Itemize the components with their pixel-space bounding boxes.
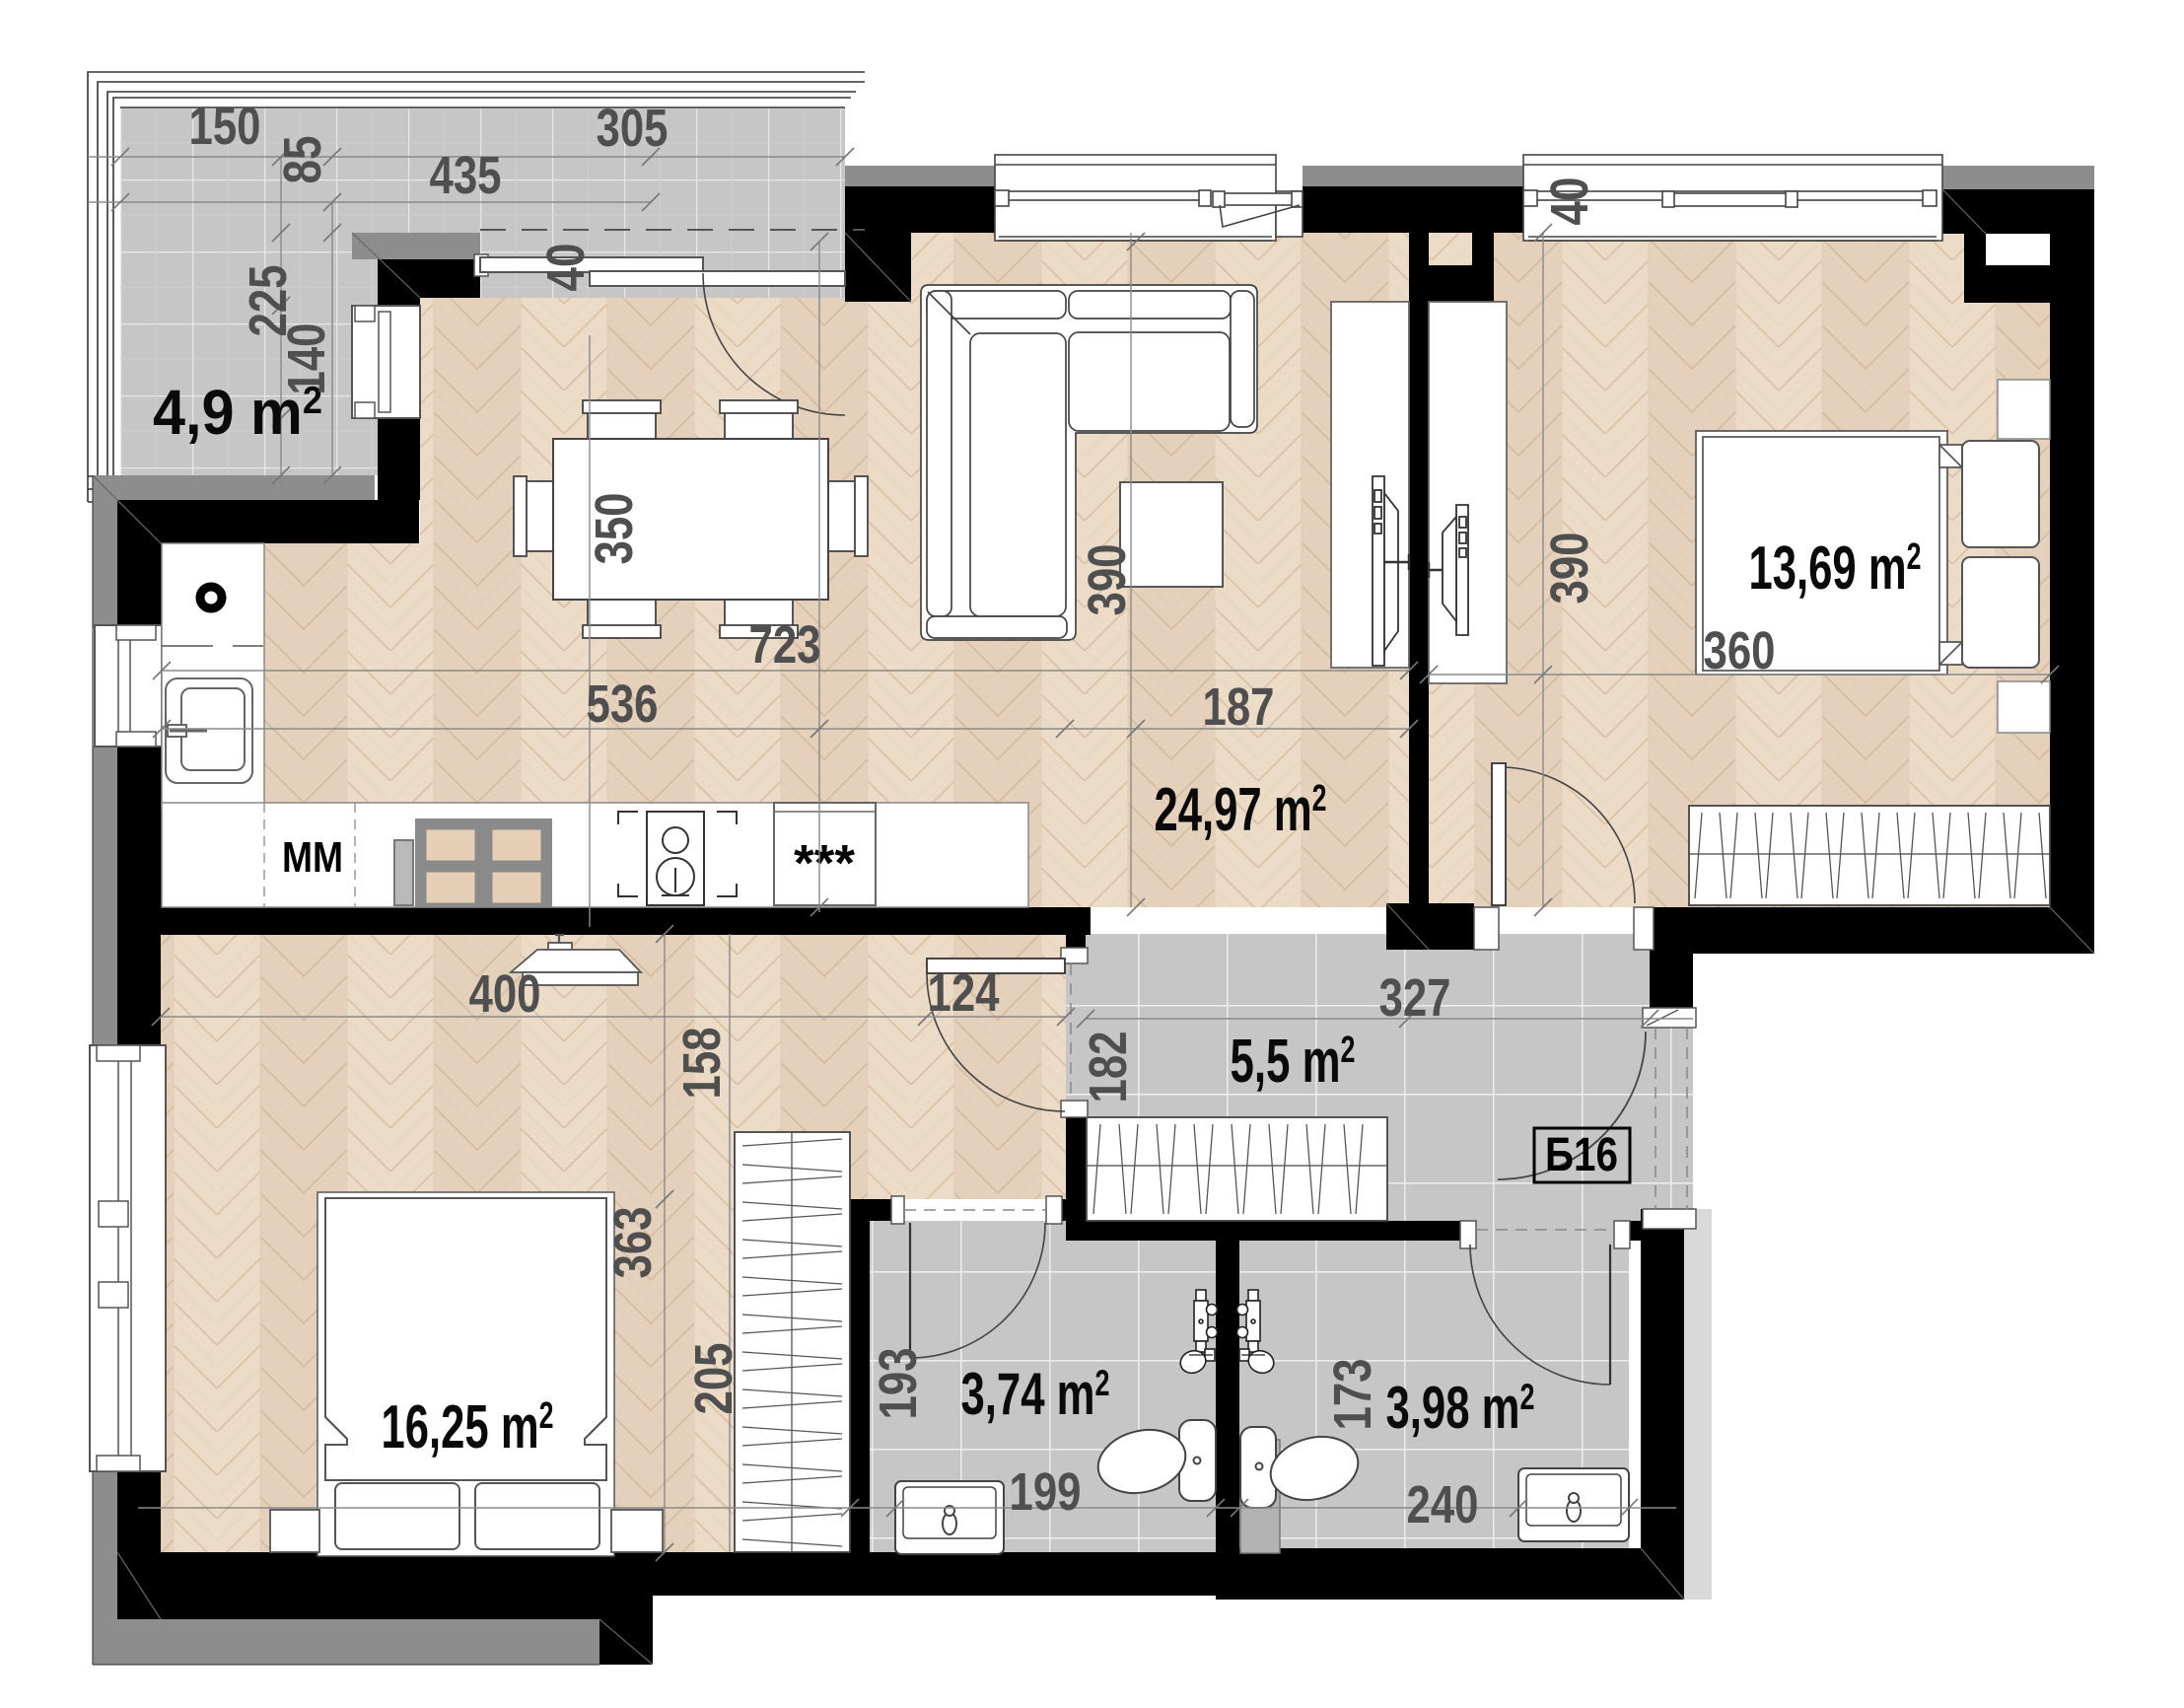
svg-text:187: 187 bbox=[1203, 677, 1275, 737]
svg-text:363: 363 bbox=[603, 1207, 663, 1279]
svg-text:40: 40 bbox=[536, 244, 596, 292]
svg-text:435: 435 bbox=[430, 146, 502, 205]
svg-text:360: 360 bbox=[1704, 621, 1776, 680]
svg-text:3,74 m2: 3,74 m2 bbox=[961, 1361, 1110, 1427]
svg-text:205: 205 bbox=[684, 1343, 743, 1415]
svg-text:5,5 m2: 5,5 m2 bbox=[1231, 1028, 1356, 1096]
svg-text:182: 182 bbox=[1079, 1032, 1138, 1103]
svg-text:158: 158 bbox=[672, 1028, 732, 1100]
svg-text:390: 390 bbox=[1078, 544, 1137, 616]
svg-text:140: 140 bbox=[277, 323, 336, 395]
svg-text:3,98 m2: 3,98 m2 bbox=[1386, 1375, 1535, 1441]
svg-text:240: 240 bbox=[1407, 1475, 1479, 1534]
svg-text:40: 40 bbox=[1540, 178, 1599, 226]
svg-text:327: 327 bbox=[1379, 968, 1451, 1028]
svg-text:16,25 m2: 16,25 m2 bbox=[382, 1393, 554, 1461]
svg-text:Б16: Б16 bbox=[1545, 1129, 1618, 1181]
svg-text:150: 150 bbox=[189, 97, 261, 156]
svg-text:173: 173 bbox=[1323, 1359, 1382, 1431]
svg-text:124: 124 bbox=[928, 963, 1000, 1023]
svg-text:390: 390 bbox=[1540, 533, 1599, 605]
svg-text:24,97 m2: 24,97 m2 bbox=[1155, 776, 1327, 844]
svg-text:85: 85 bbox=[273, 136, 332, 184]
svg-text:199: 199 bbox=[1010, 1462, 1082, 1522]
svg-text:13,69 m2: 13,69 m2 bbox=[1749, 534, 1922, 603]
svg-text:***: *** bbox=[794, 835, 856, 892]
svg-text:723: 723 bbox=[749, 615, 821, 675]
svg-text:305: 305 bbox=[597, 99, 669, 158]
svg-text:MM: MM bbox=[282, 833, 343, 882]
svg-text:350: 350 bbox=[585, 493, 644, 565]
svg-text:400: 400 bbox=[469, 964, 541, 1024]
svg-text:193: 193 bbox=[869, 1348, 928, 1420]
svg-text:536: 536 bbox=[587, 675, 659, 734]
